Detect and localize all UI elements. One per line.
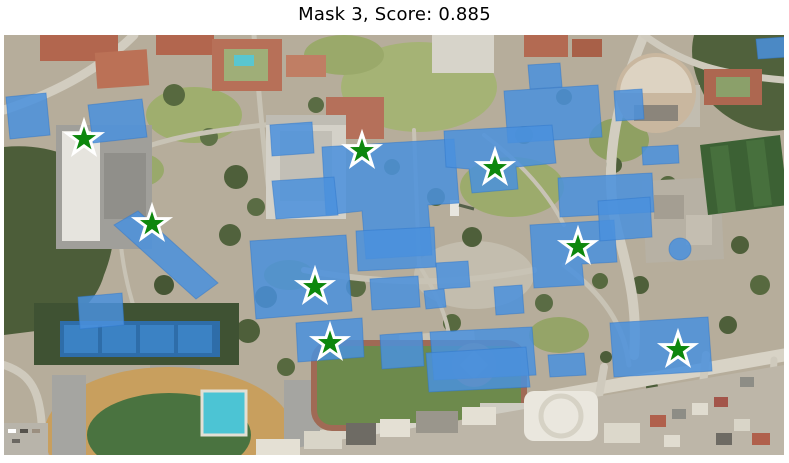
segment-mask [669, 238, 691, 260]
matplotlib-figure: Mask 3, Score: 0.885 [0, 0, 789, 463]
segment-mask [78, 293, 124, 329]
segment-mask [426, 347, 530, 392]
segment-mask [272, 177, 338, 219]
satellite-image [4, 35, 784, 455]
segment-mask [356, 227, 436, 271]
segment-mask [250, 235, 352, 319]
figure-title: Mask 3, Score: 0.885 [0, 4, 789, 25]
segment-mask [598, 197, 652, 241]
segment-mask [494, 285, 524, 315]
segment-mask [756, 37, 784, 59]
segment-mask [424, 289, 446, 309]
segment-mask [6, 93, 50, 139]
segment-mask [436, 261, 470, 289]
segment-mask [528, 63, 562, 89]
segment-mask [642, 145, 679, 165]
segment-mask [270, 122, 314, 156]
segment-mask [614, 89, 644, 121]
segment-mask [370, 276, 420, 310]
segment-mask [548, 353, 586, 377]
aerial-scene [4, 35, 784, 455]
segment-mask [610, 317, 712, 377]
segment-mask [380, 332, 424, 369]
